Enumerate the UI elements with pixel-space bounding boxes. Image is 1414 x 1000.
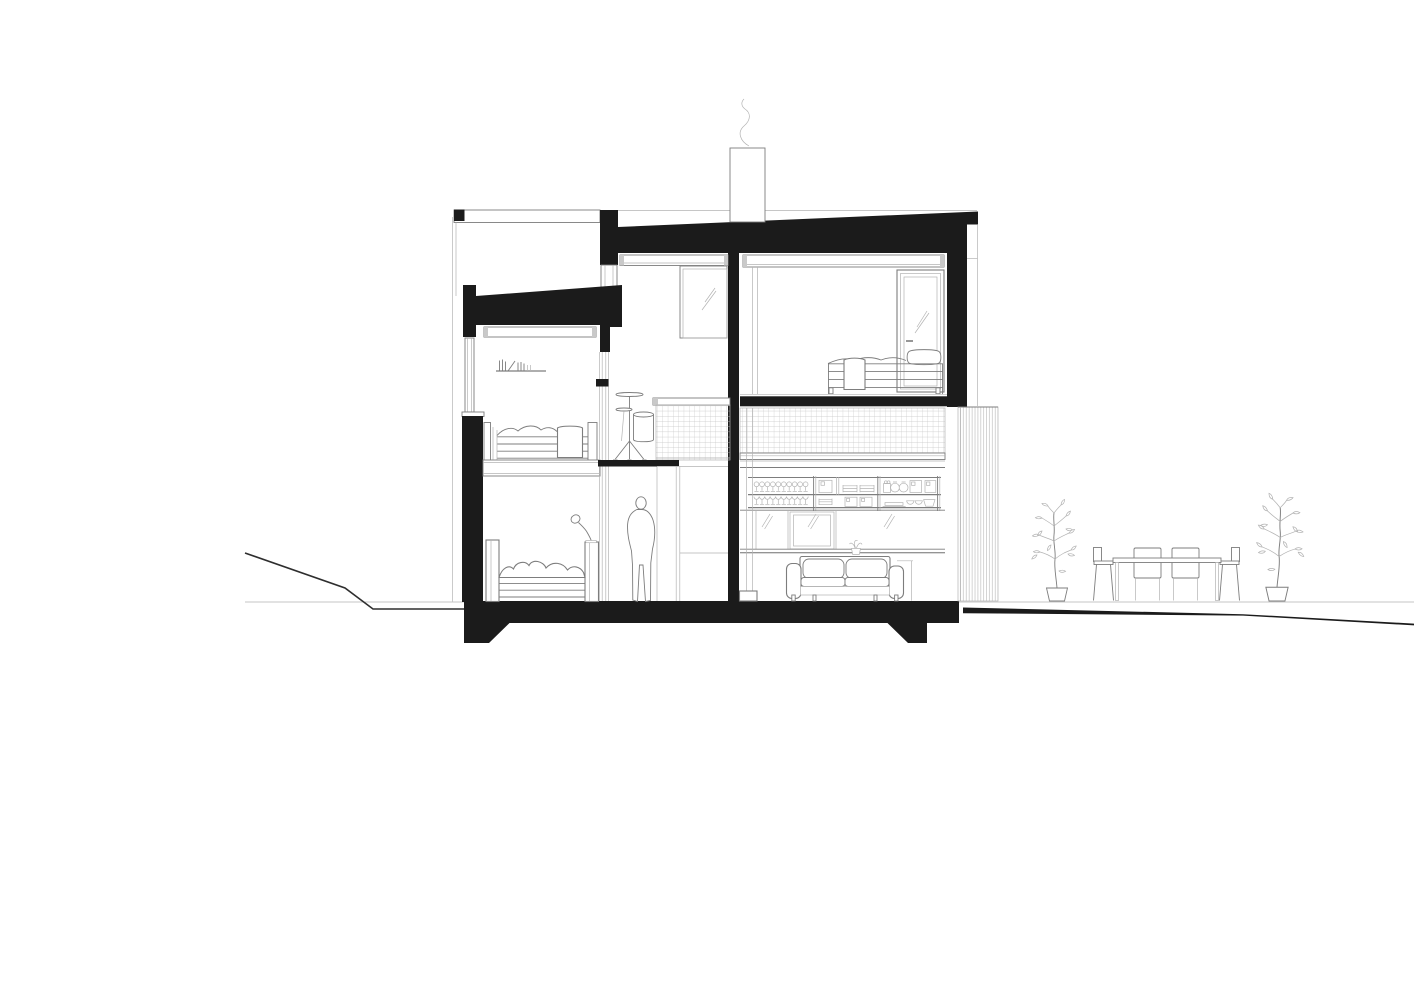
plant-cup <box>852 549 861 555</box>
tiled-wall-right <box>740 408 945 453</box>
wall-mirror <box>680 266 727 338</box>
sofa-armrest <box>787 564 802 599</box>
potted-plant-right <box>1256 493 1305 601</box>
sliding-door-inner <box>794 515 831 546</box>
double-bed <box>828 350 943 394</box>
terrain-slope-left <box>245 553 464 609</box>
tall-cabinet <box>657 466 728 601</box>
upper-middle-room <box>620 255 730 460</box>
band-cap <box>592 327 596 337</box>
sliding-door-frame <box>790 512 834 549</box>
bed-leg <box>829 388 833 394</box>
chimney <box>730 148 765 222</box>
bed-platform-slats <box>499 578 585 597</box>
middle-hall <box>596 352 728 602</box>
dining-chair-side-left <box>1094 548 1114 601</box>
seat-cushion <box>801 578 845 587</box>
glazed-door <box>897 270 944 392</box>
chimney-group <box>730 99 765 222</box>
stemware-row-lower <box>754 497 809 505</box>
bed-leg <box>936 388 940 394</box>
mixing-bowl <box>924 500 935 507</box>
standing-person <box>628 497 655 602</box>
band-cap <box>484 327 488 337</box>
window-head-band <box>620 255 728 266</box>
lamp-base <box>586 541 597 543</box>
left-window-sill <box>462 412 484 417</box>
left-wing-mullion <box>601 265 617 287</box>
round-jar <box>899 483 908 492</box>
tile-base-band <box>740 453 945 460</box>
kitchen-living <box>740 408 946 601</box>
architectural-section-canvas <box>0 0 1414 1000</box>
towel-on-bed <box>844 358 865 389</box>
drum-kit <box>613 393 654 460</box>
lamp-arm <box>579 523 592 541</box>
dining-chair-side-right <box>1220 548 1240 601</box>
partition-transom-block <box>596 379 609 387</box>
cabinet-verticals <box>657 466 680 601</box>
pillow <box>907 350 941 365</box>
rumpled-duvet <box>499 561 585 577</box>
upper-bedroom <box>740 255 947 406</box>
seat-cushion <box>845 578 889 587</box>
bed-headboard <box>484 423 491 461</box>
band-cap <box>724 255 728 266</box>
wine-glass-row-upper <box>754 482 808 492</box>
serving-tray <box>885 503 903 506</box>
ceiling-window-band <box>743 255 944 267</box>
left-window-head-band <box>484 327 596 337</box>
cymbal <box>616 393 643 397</box>
back-cushion <box>846 559 887 579</box>
band-cap <box>743 255 747 267</box>
dining-chair-back-left <box>1134 548 1161 601</box>
round-jar <box>891 483 900 492</box>
towel-on-bed <box>558 426 583 457</box>
entourage <box>1031 493 1305 601</box>
smoke-icon <box>740 99 749 146</box>
sofa-leg <box>792 595 795 601</box>
sofa-base <box>801 587 890 596</box>
column-plinth <box>740 591 758 601</box>
lower-bedroom <box>486 513 599 601</box>
vertical-board-siding <box>958 407 998 601</box>
plate-stack <box>843 485 857 492</box>
nightstand <box>585 542 599 602</box>
tiled-balustrade-left <box>656 405 730 460</box>
back-cushion <box>803 559 844 579</box>
book-shelf <box>496 360 546 372</box>
tripod-legs <box>615 441 644 460</box>
leaning-book <box>508 361 515 371</box>
person-head <box>636 497 646 509</box>
dining-set <box>1094 548 1240 601</box>
left-wing-wall-top <box>600 210 618 265</box>
sofa-leg <box>874 595 877 601</box>
sofa-armrest <box>889 566 904 599</box>
person-body <box>628 510 655 602</box>
bowls <box>907 501 923 504</box>
section-drawing <box>0 0 1414 1000</box>
glazed-partition-mullion <box>599 352 608 601</box>
bass-drum-top <box>634 412 654 417</box>
bed-headboard <box>486 540 499 602</box>
glazed-wall <box>740 510 945 553</box>
right-wall-solid <box>947 215 967 407</box>
band-cap <box>620 255 624 266</box>
upper-floor-slab <box>740 396 947 406</box>
open-shelving <box>748 476 941 511</box>
plant-sprig <box>850 540 863 548</box>
mezzanine-bed <box>484 423 597 461</box>
foundation-slab <box>464 601 959 643</box>
balustrade-beam <box>653 398 730 405</box>
tray-stack <box>819 499 832 505</box>
bed-foot-post <box>588 423 597 461</box>
band-cap <box>940 255 944 267</box>
band-cap <box>653 398 658 405</box>
main-roof <box>618 212 978 254</box>
hi-hat-rod <box>622 411 625 441</box>
dining-chair-back-right <box>1172 548 1199 601</box>
window-mullion <box>753 267 758 394</box>
lamp-head <box>570 513 582 524</box>
left-roof-edge-band <box>454 210 600 223</box>
small-books <box>528 365 531 371</box>
potted-plant-left <box>1031 499 1077 601</box>
left-parapet-corner <box>454 210 465 222</box>
plate-stack <box>860 485 874 492</box>
left-rooms <box>483 360 600 602</box>
sill-lines <box>740 549 945 552</box>
pantry-items-lower <box>819 497 935 506</box>
terrain-wedge-right <box>963 608 1414 626</box>
lower-roof-wedge <box>476 285 622 352</box>
duvet-outline <box>497 426 557 436</box>
duvet-outline <box>828 358 906 364</box>
dining-table <box>1113 558 1221 601</box>
sofa-leg <box>895 595 898 601</box>
glass-reflection-marks <box>762 514 895 529</box>
bass-drum-body <box>634 415 654 442</box>
mezzanine-floor-slab <box>598 460 679 467</box>
glazing-mullions <box>756 510 836 549</box>
siding-panel <box>958 407 998 601</box>
cabinet-horizontals <box>657 466 728 553</box>
hi-hat-cymbal <box>616 408 632 411</box>
left-window-jamb <box>465 338 474 412</box>
sofa-leg <box>813 595 816 601</box>
left-wall-solid <box>462 416 483 602</box>
lower-roof-left-bearing <box>463 285 476 337</box>
